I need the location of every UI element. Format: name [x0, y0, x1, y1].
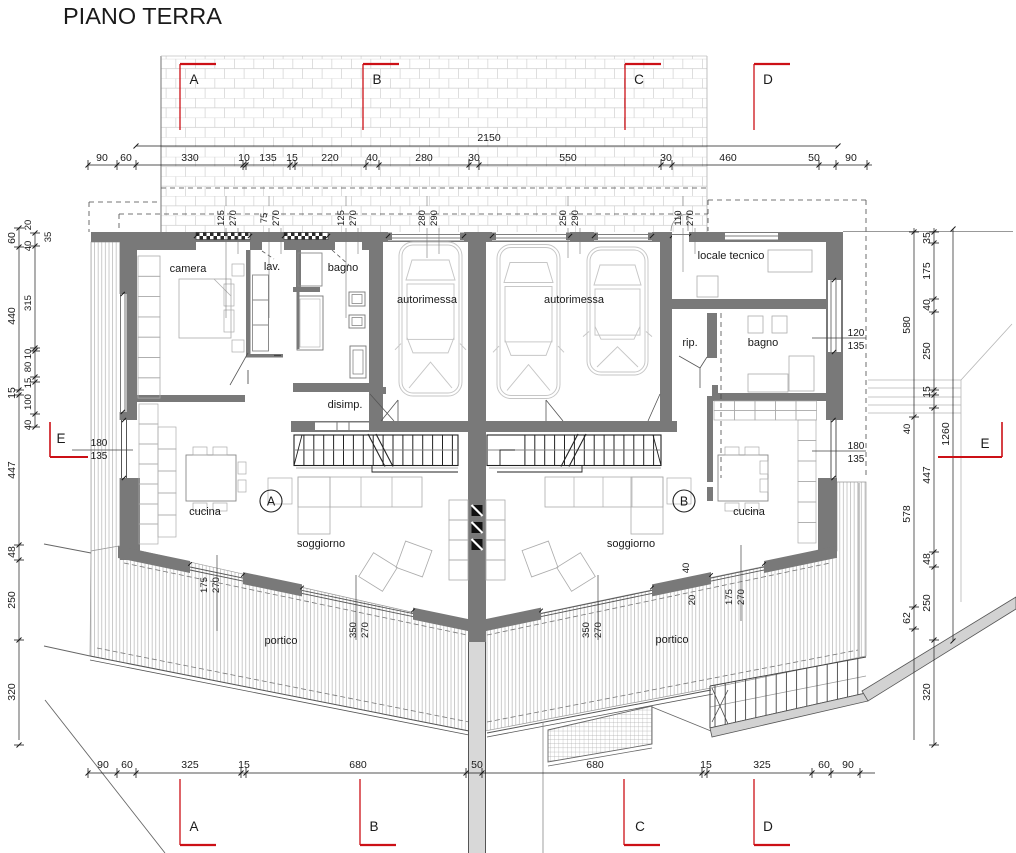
- svg-text:15: 15: [238, 759, 250, 771]
- svg-text:15: 15: [921, 386, 933, 398]
- svg-text:175: 175: [724, 589, 735, 605]
- svg-text:cucina: cucina: [733, 506, 766, 518]
- svg-text:100: 100: [23, 394, 34, 410]
- svg-text:270: 270: [348, 210, 359, 226]
- svg-text:220: 220: [321, 152, 339, 164]
- svg-text:autorimessa: autorimessa: [544, 294, 605, 306]
- svg-text:autorimessa: autorimessa: [397, 294, 458, 306]
- svg-text:40: 40: [902, 424, 913, 435]
- svg-text:75: 75: [259, 213, 270, 224]
- svg-text:B: B: [369, 819, 378, 834]
- svg-text:350: 350: [581, 622, 592, 638]
- svg-text:320: 320: [921, 683, 933, 701]
- svg-text:E: E: [980, 436, 989, 451]
- svg-text:10: 10: [238, 152, 250, 164]
- svg-text:135: 135: [91, 451, 108, 462]
- svg-text:325: 325: [753, 759, 771, 771]
- svg-text:447: 447: [921, 466, 933, 484]
- svg-text:125: 125: [336, 210, 347, 226]
- svg-text:C: C: [634, 72, 644, 87]
- svg-text:disimp.: disimp.: [328, 399, 363, 411]
- svg-text:90: 90: [842, 759, 854, 771]
- svg-text:447: 447: [6, 461, 18, 479]
- svg-text:soggiorno: soggiorno: [607, 538, 655, 550]
- svg-text:2150: 2150: [477, 132, 501, 144]
- svg-text:270: 270: [271, 210, 282, 226]
- svg-text:30: 30: [660, 152, 672, 164]
- svg-text:80: 80: [23, 362, 34, 373]
- svg-text:D: D: [763, 72, 773, 87]
- svg-text:1260: 1260: [940, 422, 952, 446]
- svg-text:15: 15: [23, 378, 34, 389]
- svg-text:D: D: [763, 819, 773, 834]
- svg-text:bagno: bagno: [748, 337, 779, 349]
- svg-text:270: 270: [736, 589, 747, 605]
- svg-text:175: 175: [199, 577, 210, 593]
- svg-text:90: 90: [96, 152, 108, 164]
- svg-text:270: 270: [685, 210, 696, 226]
- svg-text:48: 48: [921, 553, 933, 565]
- svg-text:270: 270: [228, 210, 239, 226]
- svg-text:A: A: [189, 819, 198, 834]
- svg-text:bagno: bagno: [328, 262, 359, 274]
- svg-text:270: 270: [360, 622, 371, 638]
- svg-text:E: E: [56, 431, 65, 446]
- svg-text:550: 550: [559, 152, 577, 164]
- svg-text:135: 135: [848, 454, 865, 465]
- svg-text:135: 135: [259, 152, 277, 164]
- svg-text:60: 60: [6, 232, 18, 244]
- svg-text:62: 62: [901, 612, 913, 624]
- svg-text:350: 350: [348, 622, 359, 638]
- svg-text:portico: portico: [655, 634, 688, 646]
- svg-text:250: 250: [6, 591, 18, 609]
- svg-text:315: 315: [23, 295, 34, 311]
- svg-text:120: 120: [848, 328, 865, 339]
- svg-text:90: 90: [97, 759, 109, 771]
- svg-text:250: 250: [921, 594, 933, 612]
- svg-text:40: 40: [681, 563, 692, 574]
- svg-text:110: 110: [673, 210, 684, 225]
- svg-text:35: 35: [43, 232, 54, 243]
- svg-text:270: 270: [211, 577, 222, 593]
- svg-text:15: 15: [6, 387, 18, 399]
- svg-text:90: 90: [845, 152, 857, 164]
- svg-text:440: 440: [6, 307, 18, 325]
- svg-text:290: 290: [429, 210, 440, 226]
- svg-text:locale tecnico: locale tecnico: [698, 250, 765, 262]
- svg-text:15: 15: [286, 152, 298, 164]
- svg-text:460: 460: [719, 152, 737, 164]
- svg-text:lav.: lav.: [264, 261, 280, 273]
- svg-text:48: 48: [6, 546, 18, 558]
- svg-text:40: 40: [366, 152, 378, 164]
- svg-text:35: 35: [921, 232, 933, 244]
- svg-text:320: 320: [6, 683, 18, 701]
- svg-text:20: 20: [687, 595, 698, 606]
- svg-text:280: 280: [417, 210, 428, 226]
- svg-text:270: 270: [593, 622, 604, 638]
- svg-text:camera: camera: [170, 263, 208, 275]
- svg-text:280: 280: [415, 152, 433, 164]
- svg-text:30: 30: [468, 152, 480, 164]
- svg-text:330: 330: [181, 152, 199, 164]
- svg-text:50: 50: [471, 759, 483, 771]
- svg-text:rip.: rip.: [682, 337, 697, 349]
- svg-text:20: 20: [23, 220, 34, 231]
- svg-text:B: B: [680, 495, 688, 509]
- svg-text:250: 250: [921, 342, 933, 360]
- svg-text:A: A: [267, 495, 276, 509]
- svg-text:50: 50: [808, 152, 820, 164]
- svg-text:290: 290: [570, 210, 581, 226]
- svg-text:A: A: [189, 72, 198, 87]
- svg-text:680: 680: [349, 759, 367, 771]
- svg-text:325: 325: [181, 759, 199, 771]
- svg-text:10: 10: [23, 349, 34, 360]
- svg-text:PIANO TERRA: PIANO TERRA: [63, 3, 222, 29]
- svg-text:40: 40: [23, 241, 34, 252]
- svg-text:60: 60: [121, 759, 133, 771]
- svg-text:180: 180: [848, 441, 865, 452]
- svg-text:cucina: cucina: [189, 506, 222, 518]
- svg-text:soggiorno: soggiorno: [297, 538, 345, 550]
- svg-text:15: 15: [700, 759, 712, 771]
- svg-text:B: B: [372, 72, 381, 87]
- svg-text:60: 60: [818, 759, 830, 771]
- svg-text:680: 680: [586, 759, 604, 771]
- svg-text:40: 40: [23, 420, 34, 431]
- svg-text:578: 578: [901, 505, 913, 523]
- svg-text:125: 125: [216, 210, 227, 226]
- svg-text:40: 40: [921, 299, 933, 311]
- svg-text:C: C: [635, 819, 645, 834]
- svg-text:60: 60: [120, 152, 132, 164]
- svg-text:portico: portico: [264, 635, 297, 647]
- svg-text:135: 135: [848, 341, 865, 352]
- svg-text:180: 180: [91, 438, 108, 449]
- svg-text:250: 250: [558, 210, 569, 226]
- svg-text:175: 175: [921, 262, 933, 280]
- svg-text:580: 580: [901, 316, 913, 334]
